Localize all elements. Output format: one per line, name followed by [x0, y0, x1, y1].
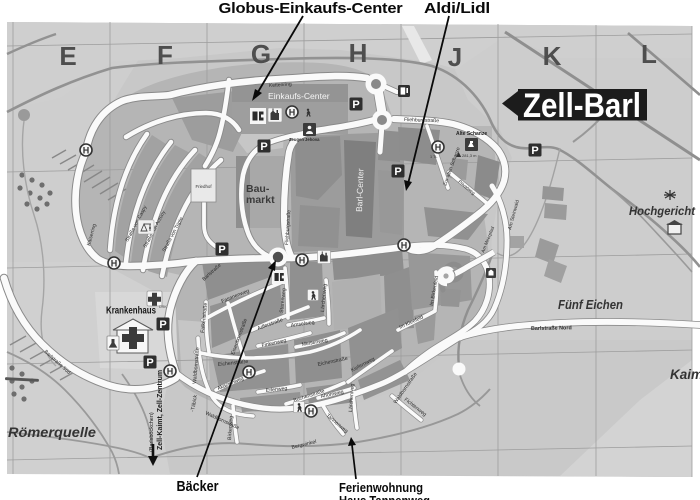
svg-text:281,3 m: 281,3 m [462, 153, 477, 158]
svg-text:Ferienwohnung: Ferienwohnung [339, 481, 423, 495]
svg-text:Friedhof: Friedhof [195, 184, 212, 189]
svg-text:P: P [394, 166, 401, 178]
svg-text:H: H [111, 258, 118, 268]
svg-text:Zeugen Jehova: Zeugen Jehova [289, 137, 320, 142]
svg-text:P: P [260, 141, 267, 153]
svg-text:Einkaufs-Center: Einkaufs-Center [268, 91, 330, 101]
svg-text:H: H [401, 240, 408, 250]
svg-text:DRK: DRK [159, 305, 167, 309]
svg-text:markt: markt [246, 194, 275, 206]
svg-text:H: H [299, 255, 306, 265]
svg-text:K: K [543, 41, 562, 71]
svg-text:G: G [251, 39, 271, 69]
svg-text:H: H [83, 145, 90, 155]
svg-text:F: F [157, 40, 173, 70]
svg-text:Bäcker: Bäcker [177, 478, 219, 495]
svg-text:L: L [641, 39, 657, 69]
svg-text:Fünf Eichen: Fünf Eichen [558, 297, 623, 312]
svg-text:H: H [349, 38, 368, 68]
svg-text:H: H [246, 367, 253, 377]
svg-text:Barl-Center: Barl-Center [354, 168, 366, 212]
svg-text:J: J [448, 42, 462, 72]
svg-text:Alte Schanze: Alte Schanze [456, 131, 487, 137]
svg-text:P: P [531, 145, 538, 157]
svg-text:Globus-Einkaufs-Center: Globus-Einkaufs-Center [219, 0, 403, 17]
svg-text:Haus Tannenweg: Haus Tannenweg [339, 494, 430, 500]
svg-text:Barlstraße Nord: Barlstraße Nord [531, 325, 572, 332]
svg-text:P: P [159, 319, 166, 331]
svg-text:Kaim: Kaim [670, 367, 700, 382]
svg-text:P: P [218, 244, 225, 256]
svg-text:Zell-Kaimt, Zell-Zentrum: Zell-Kaimt, Zell-Zentrum [157, 370, 164, 450]
svg-text:Hochgericht: Hochgericht [629, 204, 696, 218]
svg-text:H: H [435, 142, 442, 152]
svg-text:P: P [352, 99, 359, 111]
svg-text:1 TL: 1 TL [430, 155, 438, 159]
svg-text:H: H [167, 366, 174, 376]
svg-text:Fliehburgstraße: Fliehburgstraße [404, 117, 439, 124]
svg-text:Zell-Barl: Zell-Barl [523, 87, 641, 125]
svg-text:H: H [308, 406, 315, 416]
svg-text:P: P [146, 357, 153, 369]
svg-text:Krankenhaus: Krankenhaus [106, 306, 156, 317]
svg-text:Aldi/Lidl: Aldi/Lidl [424, 0, 490, 17]
svg-text:E: E [59, 41, 76, 71]
svg-text:Römerquelle: Römerquelle [8, 424, 96, 440]
svg-text:H: H [289, 107, 296, 117]
